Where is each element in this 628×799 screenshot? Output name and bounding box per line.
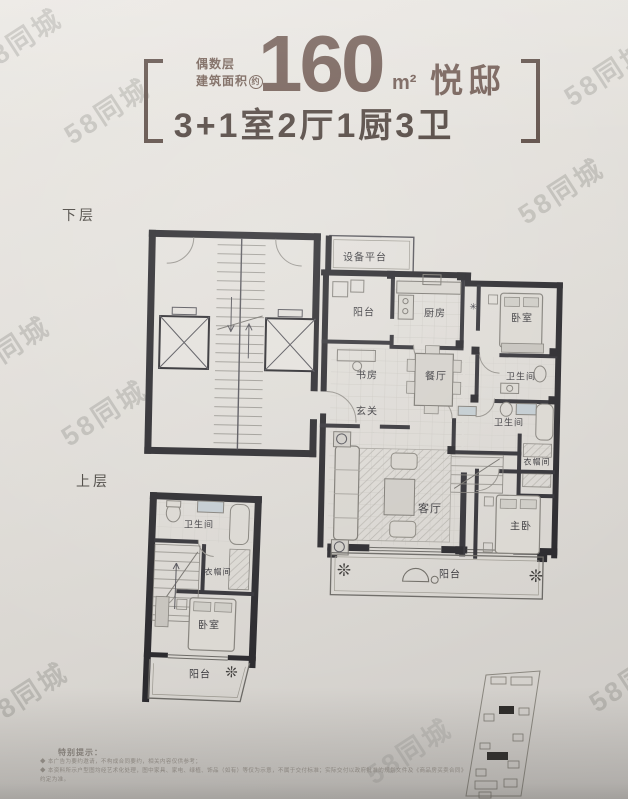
- room-label-living-room: 客厅: [418, 500, 442, 516]
- disclaimer-title: 特别提示：: [58, 747, 470, 758]
- suite-name: 悦邸: [430, 54, 506, 102]
- room-label-bedroom: 卧室: [511, 310, 533, 325]
- highlighted-building: [487, 752, 508, 760]
- coffee-table: [384, 479, 415, 516]
- header-area-caption: 偶数层 建筑面积约: [196, 56, 263, 90]
- room-label-bathroom-1: 卫生间: [506, 370, 536, 383]
- door-arc: [167, 237, 194, 264]
- floor-parity-label: 偶数层: [196, 56, 263, 73]
- plant-icon: ❊: [529, 567, 544, 586]
- room-label-upper-bathroom: 卫生间: [184, 518, 214, 531]
- room-label-cloakroom: 衣帽间: [524, 457, 551, 468]
- pet-house: [403, 568, 429, 582]
- bathtub: [536, 404, 554, 440]
- lower-balcony: ❊ ❊: [330, 553, 543, 599]
- living-room-furniture: [331, 432, 452, 557]
- door-arc: [275, 239, 302, 266]
- flue-symbol: ✳: [469, 301, 477, 311]
- area-value: 160: [258, 18, 382, 110]
- room-label-upper-cloakroom: 衣帽间: [205, 567, 232, 578]
- elevator-right: [265, 309, 315, 371]
- room-label-balcony-bottom: 阳台: [439, 566, 461, 581]
- room-label-kitchen: 厨房: [424, 305, 446, 320]
- area-unit: m²: [392, 72, 416, 95]
- sofa: [333, 446, 359, 540]
- elevator-left: [159, 307, 209, 369]
- room-label-bathroom-2: 卫生间: [494, 416, 524, 429]
- room-label-upper-balcony: 阳台: [189, 666, 211, 681]
- disclaimer-line: ◆ 本广告为要约邀请，不构成合同要约，相关内容仅供参考；: [40, 758, 470, 767]
- layout-summary: 3+1室2厅1厨3卫: [0, 98, 628, 147]
- room-label-upper-bedroom: 卧室: [198, 617, 220, 632]
- area-label: 建筑面积约: [196, 73, 263, 90]
- plant-icon: ❊: [225, 664, 238, 681]
- upper-closet: [228, 549, 250, 590]
- lower-floor-label: 下层: [62, 205, 96, 225]
- room-label-entry: 玄关: [356, 403, 378, 418]
- upper-floor-label: 上层: [76, 471, 110, 491]
- highlighted-building: [499, 706, 514, 714]
- floorplan-photo: 58同城 58同城 58同城 58同城 58同城 58同城 58同城 58同城 …: [0, 0, 628, 799]
- room-label-dining: 餐厅: [425, 368, 447, 383]
- disclaimer: 特别提示： ◆ 本广告为要约邀请，不构成合同要约，相关内容仅供参考； ◆ 本资料…: [40, 747, 470, 785]
- room-label-master-bedroom: 主卧: [510, 518, 532, 533]
- armchair: [390, 521, 416, 538]
- stair-elevator-core: [144, 230, 321, 458]
- site-plan: [466, 671, 540, 798]
- internal-stairs: [451, 454, 504, 493]
- disclaimer-line: ◆ 本资料所示户型图均经艺术化处理，图中家具、家电、绿植、饰品（如有）等仅为示意…: [40, 767, 470, 785]
- bathtub: [229, 504, 250, 545]
- room-label-balcony-top: 阳台: [353, 304, 375, 319]
- room-label-study: 书房: [356, 367, 378, 382]
- plant-icon: ❊: [337, 561, 352, 580]
- upper-bed: [154, 596, 236, 651]
- room-label-equipment-platform: 设备平台: [343, 249, 387, 264]
- armchair: [391, 453, 417, 470]
